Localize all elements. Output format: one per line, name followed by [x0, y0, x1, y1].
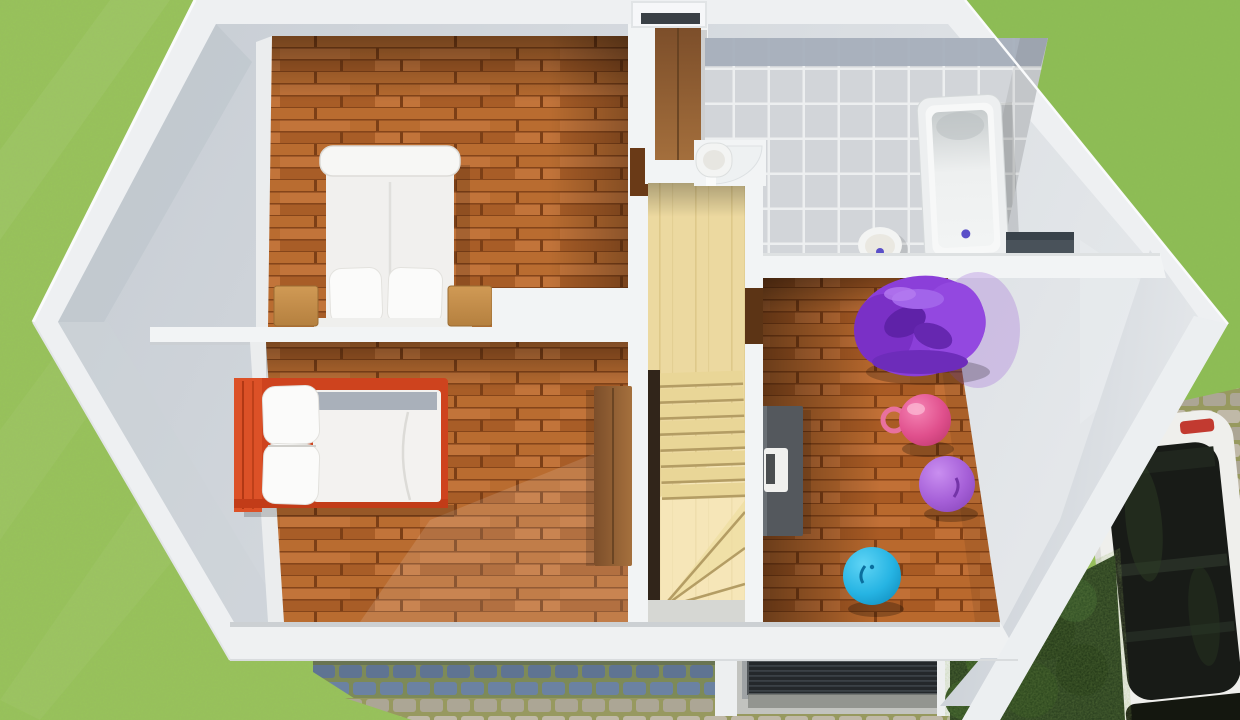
floor-plan-render: [0, 0, 1240, 720]
bed-blanket-gray: [317, 392, 437, 410]
ventilation-grate: [748, 661, 940, 694]
toilet: [696, 143, 732, 177]
tile-accent-band: [705, 38, 1048, 66]
bed-headboard-red: [234, 378, 262, 512]
stairwell: [645, 160, 763, 624]
scene: [0, 0, 1240, 720]
bedroom-2: [234, 342, 632, 622]
lower-landing: [648, 600, 745, 623]
laptop: [764, 448, 788, 492]
south-wall-shadow-line: [230, 622, 1000, 627]
nightstand-right: [448, 286, 492, 326]
south-wall-band: [230, 622, 1020, 658]
stairwell-right-wall: [745, 183, 763, 624]
nightstand-left: [274, 286, 318, 326]
bed-single: [234, 378, 454, 517]
wall-between-bedrooms: [150, 327, 628, 342]
laptop-keyboard: [766, 454, 775, 484]
bathtub: [917, 93, 1021, 264]
bathroom-bottom-wall: [763, 253, 1166, 278]
pillow: [329, 267, 383, 325]
stair-void: [648, 370, 660, 600]
pillow: [262, 443, 320, 505]
roof-window: [632, 2, 706, 27]
landing-door-opening: [745, 288, 763, 344]
window-slot: [641, 13, 700, 24]
desk: [763, 406, 811, 536]
pillow: [387, 267, 443, 325]
pillow: [262, 385, 320, 445]
bed-blanket-roll: [320, 146, 460, 176]
